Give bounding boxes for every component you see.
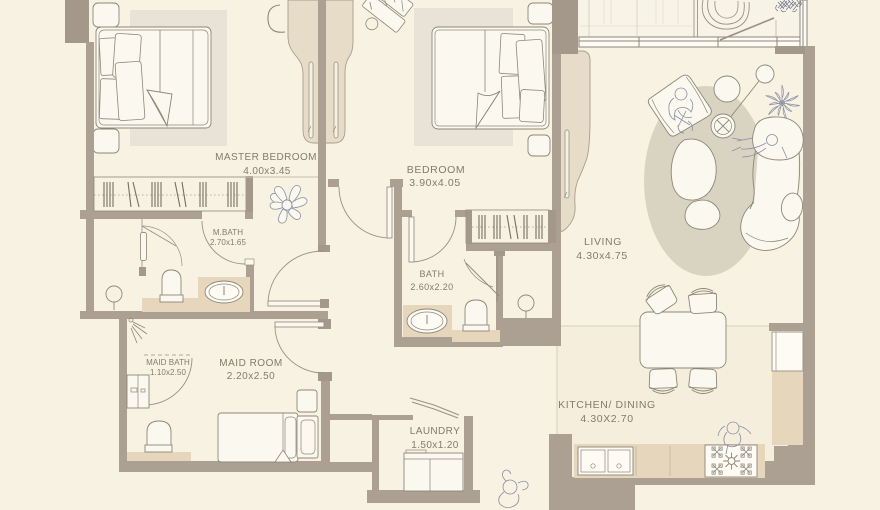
svg-text:LAUNDRY: LAUNDRY [410,426,460,437]
svg-text:MAID BATH: MAID BATH [146,358,190,367]
svg-text:MAID ROOM: MAID ROOM [219,358,282,369]
svg-text:MASTER BEDROOM: MASTER BEDROOM [215,152,317,163]
svg-text:1.50x1.20: 1.50x1.20 [411,440,459,451]
svg-text:2.60x2.20: 2.60x2.20 [410,282,453,292]
svg-text:BEDROOM: BEDROOM [407,164,465,176]
svg-text:KITCHEN/ DINING: KITCHEN/ DINING [558,399,656,411]
svg-text:1.10x2.50: 1.10x2.50 [150,368,186,377]
svg-text:4.00x3.45: 4.00x3.45 [243,166,291,177]
svg-text:4.30X2.70: 4.30X2.70 [580,413,633,425]
svg-text:M.BATH: M.BATH [213,228,243,237]
svg-text:2.70x1.65: 2.70x1.65 [210,238,246,247]
svg-text:BATH: BATH [420,269,445,279]
svg-text:3.90x4.05: 3.90x4.05 [409,177,461,189]
svg-text:4.30x4.75: 4.30x4.75 [576,250,628,262]
svg-text:2.20x2.50: 2.20x2.50 [227,371,275,382]
svg-text:LIVING: LIVING [584,236,622,248]
